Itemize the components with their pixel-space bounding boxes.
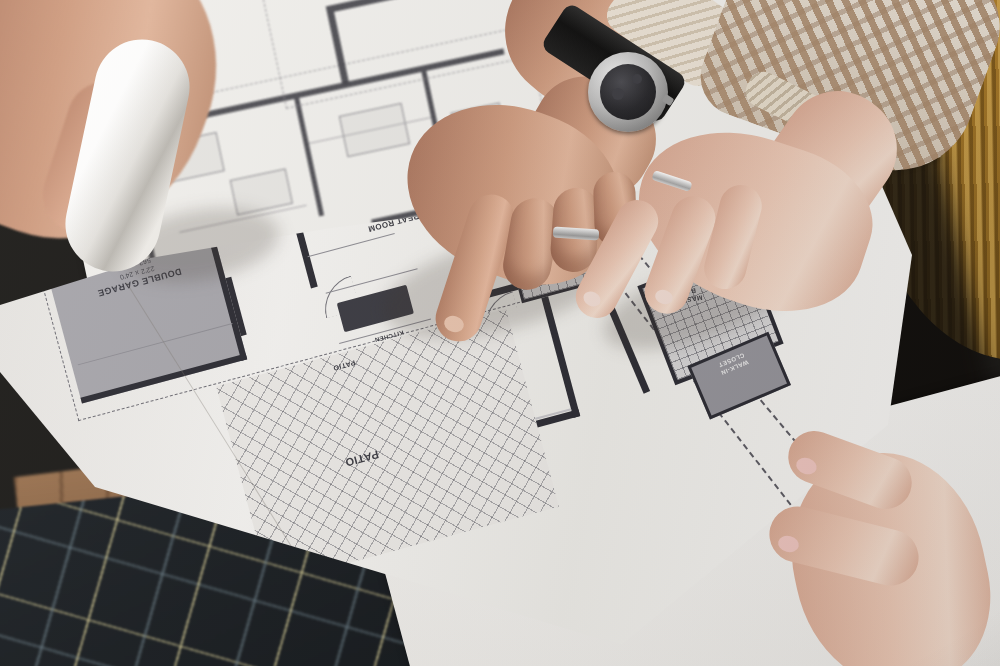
photograph: DOUBLE GARAGE 22'2 x 24'0 563 sq. ft. GR… [0, 0, 1000, 666]
watch-face [600, 64, 656, 120]
watch-subdial-1 [612, 88, 624, 100]
watch-subdial-2 [632, 74, 642, 84]
